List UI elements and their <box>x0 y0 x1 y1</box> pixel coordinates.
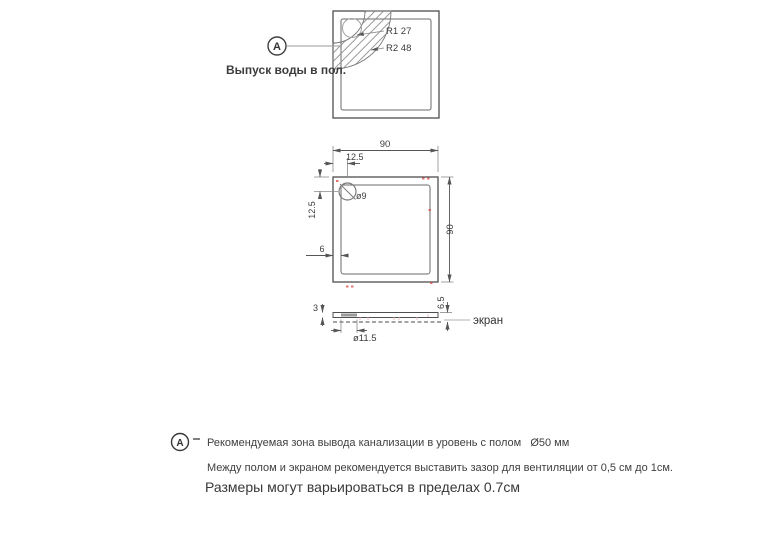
note-ventilation-gap: Между полом и экраном рекомендуется выст… <box>207 462 673 474</box>
note-marker-letter: A <box>176 438 183 449</box>
red-mark <box>429 209 432 211</box>
red-mark <box>422 178 425 180</box>
drain-offset-x-dimension: 12.5 <box>346 152 364 162</box>
wall-thickness-dimension: 6 <box>319 244 324 254</box>
drain-offset-y-dimension: 12.5 <box>307 201 317 219</box>
red-mark <box>351 286 354 288</box>
note-drain-zone: Рекомендуемая зона вывода канализации в … <box>207 437 569 449</box>
red-mark <box>430 282 433 284</box>
drain-diameter-label: ø9 <box>356 191 367 201</box>
total-height-dimension: 6.5 <box>436 296 446 309</box>
technical-drawing-page: R1 27 R2 48 A Выпуск воды в пол. ø9 90 1… <box>0 0 762 533</box>
notes-marker: A <box>172 434 201 451</box>
water-outlet-callout: Выпуск воды в пол. <box>226 63 346 77</box>
r1-dimension: R1 27 <box>386 26 411 37</box>
screen-label: экран <box>473 315 503 327</box>
height-dimension: 90 <box>445 224 456 235</box>
drain-profile-diameter-dimension: ø11.5 <box>353 333 377 344</box>
drain-slash <box>340 184 356 200</box>
detail-marker-letter: A <box>273 41 281 53</box>
detail-view: R1 27 R2 48 A Выпуск воды в пол. <box>226 11 439 118</box>
width-dimension: 90 <box>380 139 391 150</box>
r2-dimension: R2 48 <box>386 43 411 54</box>
plan-view: ø9 90 12.5 12.5 6 90 <box>306 139 456 288</box>
drain-profile-segment <box>341 314 357 317</box>
note-size-tolerance: Размеры могут варьироваться в пределах 0… <box>205 479 520 495</box>
edge-height-dimension: 3 <box>313 303 318 313</box>
red-mark <box>427 178 430 180</box>
drawing-svg: R1 27 R2 48 A Выпуск воды в пол. ø9 90 1… <box>0 0 762 533</box>
red-mark <box>346 286 349 288</box>
side-view: 3 6.5 ø11.5 экран <box>313 296 503 344</box>
red-mark <box>336 180 339 182</box>
